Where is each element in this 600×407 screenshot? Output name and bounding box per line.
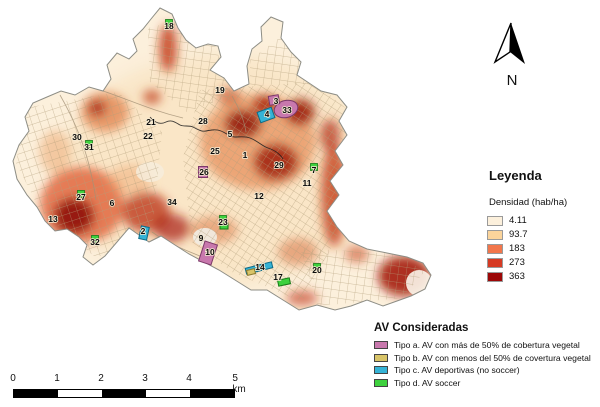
density-legend: Leyenda Densidad (hab/ha) 4.11 93.7 183 … <box>487 168 599 285</box>
legend-row: 4.11 <box>487 215 599 226</box>
north-arrow-icon <box>492 20 532 66</box>
scale-segment <box>190 390 234 397</box>
map-point-label-34: 34 <box>167 197 177 207</box>
av-type-c-swatch <box>374 366 388 374</box>
map-point-label-10: 10 <box>205 247 215 257</box>
scale-tick: 3 <box>142 373 148 384</box>
av-legend-row: Tipo c. AV deportivas (no soccer) <box>374 365 600 375</box>
scale-segment <box>58 390 102 397</box>
legend-row: 183 <box>487 243 599 254</box>
scale-tick: 1 <box>54 373 60 384</box>
map-point-label-27: 27 <box>76 192 86 202</box>
map-point-label-29: 29 <box>274 160 284 170</box>
density-value: 4.11 <box>509 215 527 226</box>
av-legend-row: Tipo d. AV soccer <box>374 378 600 388</box>
map-point-label-21: 21 <box>146 117 156 127</box>
scale-labels: 0 1 2 3 4 5 km <box>11 373 251 386</box>
scale-segment <box>14 390 58 397</box>
map-point-label-5: 5 <box>228 129 233 139</box>
map-point-label-23: 23 <box>218 217 228 227</box>
av-legend: AV Consideradas Tipo a. AV con más de 50… <box>374 322 600 390</box>
scale-bar: 0 1 2 3 4 5 km <box>11 373 251 401</box>
scale-tick: 4 <box>186 373 192 384</box>
map-point-label-26: 26 <box>199 167 209 177</box>
map-point-label-31: 31 <box>84 142 94 152</box>
scale-bar-track <box>13 389 235 398</box>
map-point-label-4: 4 <box>265 109 270 119</box>
legend-subtitle: Densidad (hab/ha) <box>489 197 599 208</box>
map-point-label-13: 13 <box>48 214 58 224</box>
map-point-label-18: 18 <box>164 21 174 31</box>
av-legend-row: Tipo b. AV con menos del 50% de covertur… <box>374 353 600 363</box>
av-type-b-label: Tipo b. AV con menos del 50% de covertur… <box>394 353 591 363</box>
map-point-label-3: 3 <box>274 96 279 106</box>
density-value: 273 <box>509 257 525 268</box>
scale-tick: 2 <box>98 373 104 384</box>
scale-segment <box>102 390 146 397</box>
density-swatch <box>487 258 503 268</box>
density-value: 183 <box>509 243 525 254</box>
map-point-label-7: 7 <box>312 165 317 175</box>
map-point-label-22: 22 <box>143 131 153 141</box>
north-label: N <box>492 72 532 89</box>
av-type-b-swatch <box>374 354 388 362</box>
north-arrow: N <box>492 20 532 89</box>
density-swatch <box>487 272 503 282</box>
map-point-label-14: 14 <box>255 262 265 272</box>
density-swatch <box>487 216 503 226</box>
map-point-label-12: 12 <box>254 191 264 201</box>
map-point-label-17: 17 <box>273 272 283 282</box>
map-point-label-11: 11 <box>303 178 312 188</box>
map-point-label-28: 28 <box>198 116 208 126</box>
map-point-label-20: 20 <box>312 265 322 275</box>
av-legend-row: Tipo a. AV con más de 50% de cobertura v… <box>374 340 600 350</box>
map-point-label-6: 6 <box>110 198 115 208</box>
map-point-label-2: 2 <box>141 226 146 236</box>
map-point-label-33: 33 <box>282 105 292 115</box>
density-value: 363 <box>509 271 525 282</box>
map-point-label-25: 25 <box>210 146 220 156</box>
av-type-a-label: Tipo a. AV con más de 50% de cobertura v… <box>394 340 580 350</box>
av-type-d-label: Tipo d. AV soccer <box>394 378 460 388</box>
av-type-c-label: Tipo c. AV deportivas (no soccer) <box>394 365 520 375</box>
density-swatch <box>487 244 503 254</box>
legend-row: 273 <box>487 257 599 268</box>
map-point-label-9: 9 <box>199 233 204 243</box>
density-swatch <box>487 230 503 240</box>
map-figure: 1234567910111213141718192021222325262728… <box>0 0 600 407</box>
density-value: 93.7 <box>509 229 528 240</box>
legend-row: 93.7 <box>487 229 599 240</box>
map-point-label-32: 32 <box>90 237 100 247</box>
av-type-a-swatch <box>374 341 388 349</box>
legend-row: 363 <box>487 271 599 282</box>
scale-segment <box>146 390 190 397</box>
map-point-label-19: 19 <box>215 85 225 95</box>
av-type-d-swatch <box>374 379 388 387</box>
map-point-label-1: 1 <box>243 150 248 160</box>
av-legend-title: AV Consideradas <box>374 322 600 334</box>
legend-title: Leyenda <box>489 168 599 183</box>
map-point-label-30: 30 <box>72 132 82 142</box>
scale-tick: 0 <box>10 373 16 384</box>
